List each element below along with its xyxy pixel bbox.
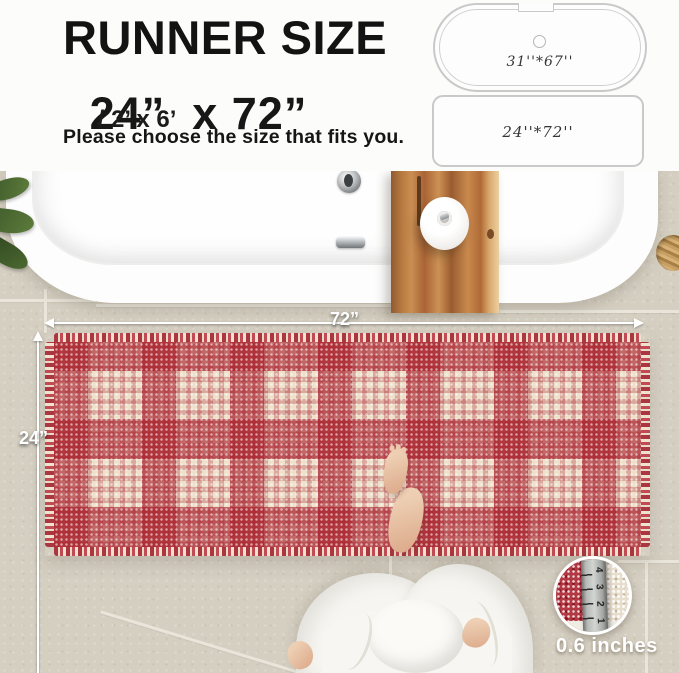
header: RUNNER SIZE 24” x 72” / 2’ x 6’ Please c… — [0, 0, 679, 171]
toilet-paper-roll — [420, 197, 469, 250]
arrow-right-icon — [634, 318, 644, 328]
bathtub-size-label: 31''*67'' — [435, 54, 645, 70]
rug-fringe-bottom — [54, 546, 641, 556]
tagline-text: Please choose the size that fits you. — [63, 126, 404, 149]
rug-fringe-right — [640, 342, 650, 547]
toe — [401, 447, 407, 454]
grout-line — [0, 299, 96, 302]
ruler-number: 3 — [590, 579, 607, 596]
height-label: 24” — [19, 428, 48, 449]
rug-plaid-pattern — [54, 342, 641, 547]
toe — [389, 445, 395, 452]
faucet-lever-icon — [336, 237, 365, 248]
ruler-icon: 4 3 2 1 — [581, 559, 609, 635]
bathtub — [6, 171, 658, 303]
height-dimension-line — [37, 338, 39, 673]
bathroom-photo: 72” 24” 4 3 2 1 — [0, 171, 679, 673]
bathtub-basin — [32, 171, 624, 265]
runner-rug — [45, 333, 650, 556]
arrow-left-icon — [44, 318, 54, 328]
drain-icon — [533, 35, 546, 48]
width-label: 72” — [326, 309, 363, 330]
bathtub-outline-icon: 31''*67'' — [433, 3, 647, 92]
arrow-up-icon — [33, 331, 43, 341]
overflow-hole — [344, 174, 353, 187]
tray-knot — [487, 229, 494, 239]
person-towel-head — [368, 599, 464, 673]
page-title: RUNNER SIZE — [63, 10, 387, 65]
pile-closeup-inset: 4 3 2 1 — [553, 556, 632, 635]
grout-line — [500, 310, 679, 313]
size-line: 24” x 72” / 2’ x 6’ — [63, 70, 90, 122]
runner-size-label: 24''*72'' — [434, 97, 642, 167]
ruler-number: 4 — [590, 562, 607, 579]
runner-outline-icon: 24''*72'' — [432, 95, 644, 167]
ruler-number: 2 — [591, 596, 608, 613]
pile-height-label: 0.6 inches — [556, 635, 658, 658]
faucet-notch-icon — [518, 3, 554, 12]
ruler-number: 1 — [592, 613, 609, 630]
grout-line — [96, 304, 392, 307]
product-size-infographic: RUNNER SIZE 24” x 72” / 2’ x 6’ Please c… — [0, 0, 679, 673]
